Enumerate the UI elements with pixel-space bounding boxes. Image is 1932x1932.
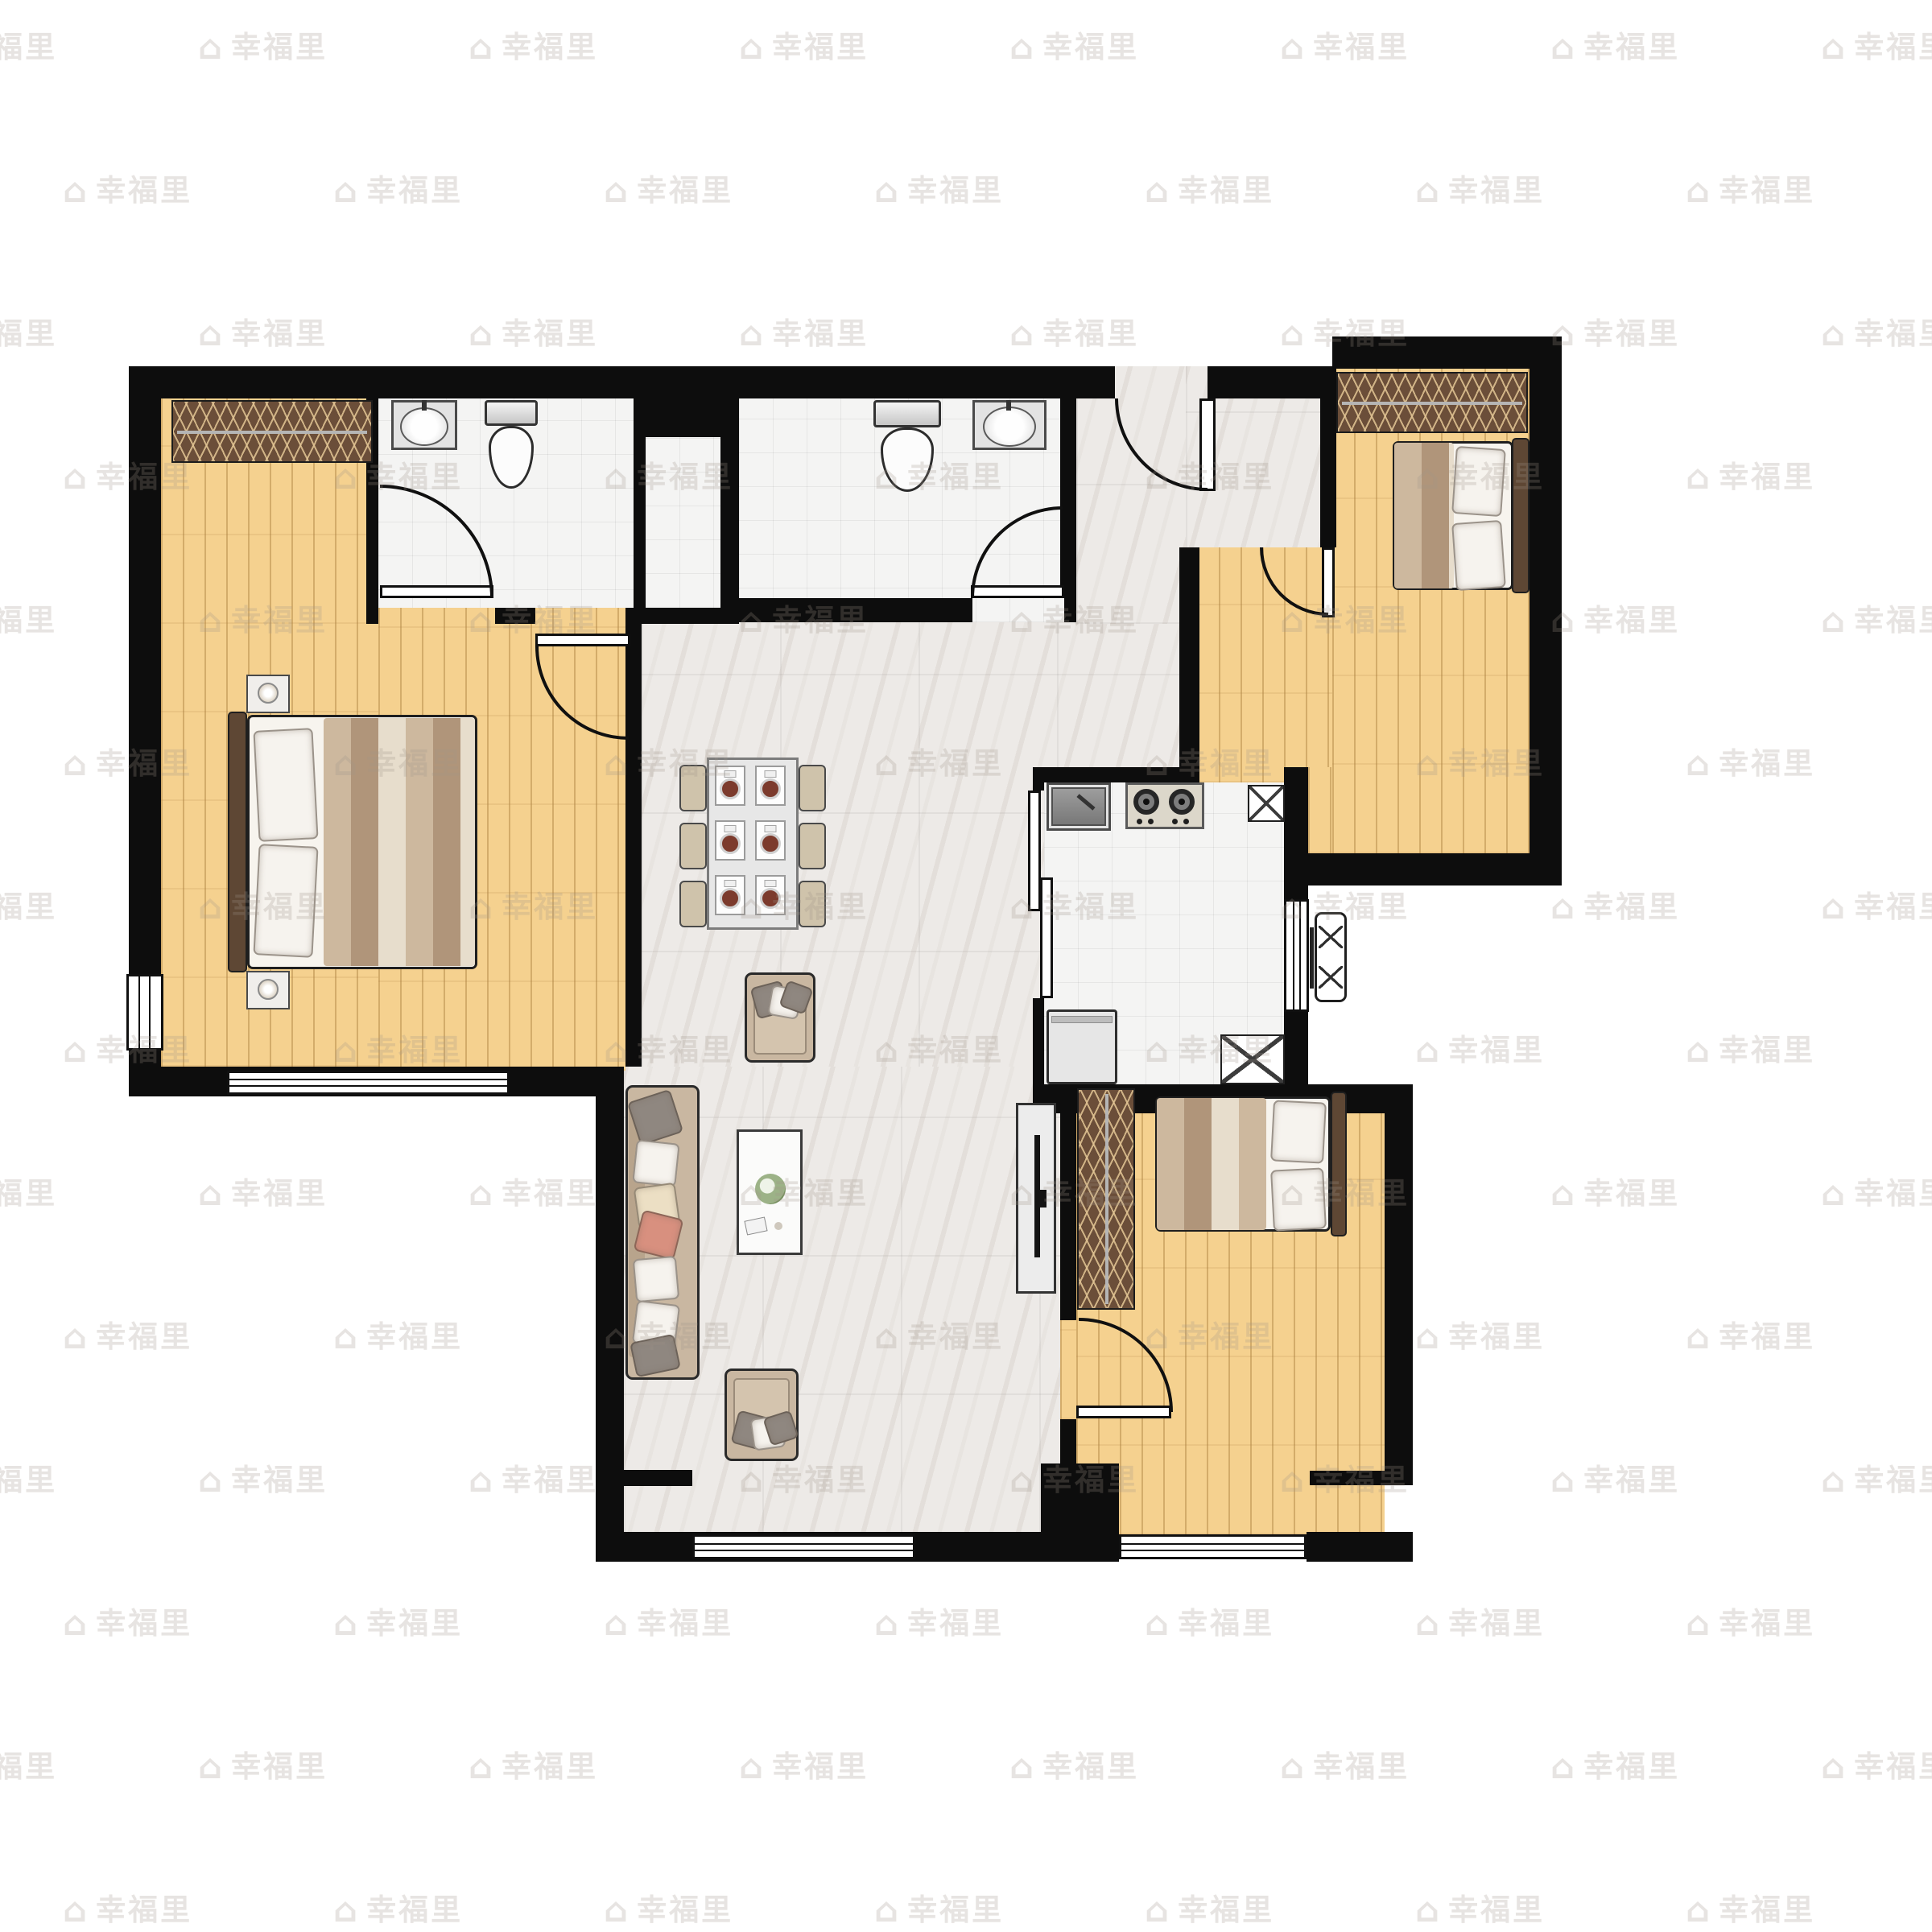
house-icon: ⌂ (1415, 1604, 1442, 1643)
house-icon: ⌂ (198, 1174, 225, 1213)
watermark-text: ⌂幸福里 (63, 166, 192, 210)
house-icon: ⌂ (1821, 27, 1847, 67)
watermark-text: ⌂幸福里 (0, 1742, 57, 1786)
house-icon: ⌂ (604, 1890, 630, 1930)
watermark-text: ⌂幸福里 (0, 1455, 57, 1500)
watermark-text: ⌂幸福里 (1821, 23, 1932, 67)
wall-bath1-bed1-post (495, 608, 535, 624)
watermark-text: ⌂幸福里 (739, 23, 869, 67)
ac-unit-fan-top (1319, 926, 1343, 948)
floor-plan-canvas: ⌂幸福里⌂幸福里⌂幸福里⌂幸福里⌂幸福里⌂幸福里⌂幸福里⌂幸福里⌂幸福里⌂幸福里… (0, 0, 1932, 1932)
house-icon: ⌂ (63, 171, 89, 210)
window-living-bottom (692, 1534, 915, 1559)
watermark-text: ⌂幸福里 (874, 166, 1004, 210)
wall-kitchen-left-a (1033, 782, 1044, 791)
dining-chair-right-3 (799, 881, 826, 927)
watermark-text: ⌂幸福里 (333, 1312, 463, 1356)
house-icon: ⌂ (1686, 1317, 1712, 1356)
house-icon: ⌂ (333, 1317, 360, 1356)
dining-setting-2 (755, 766, 786, 806)
wall-top-main (129, 366, 1115, 398)
house-icon: ⌂ (63, 1890, 89, 1930)
bedroom3-bed-pillow-a (1270, 1100, 1327, 1163)
dining-setting-3 (715, 820, 745, 861)
dining-setting-5 (715, 875, 745, 915)
house-icon: ⌂ (1550, 1747, 1577, 1786)
wall-nook-left (1179, 547, 1199, 782)
watermark-text: ⌂幸福里 (1686, 1312, 1815, 1356)
house-icon: ⌂ (1009, 314, 1036, 353)
house-icon: ⌂ (1280, 314, 1307, 353)
watermark-text: ⌂幸福里 (333, 1599, 463, 1643)
wall-bath2-door-jamb (1064, 598, 1076, 622)
door-leaf-kitchen-slider-a (1028, 791, 1041, 911)
watermark-text: ⌂幸福里 (1821, 1455, 1932, 1500)
house-icon: ⌂ (1821, 1460, 1847, 1500)
bath2-sink-faucet (1006, 400, 1011, 411)
wall-right-outer (1529, 336, 1562, 885)
house-icon: ⌂ (63, 457, 89, 497)
watermark-text: ⌂幸福里 (333, 1885, 463, 1930)
house-icon: ⌂ (1821, 887, 1847, 927)
kitchen-burner-left-core (1143, 799, 1150, 805)
house-icon: ⌂ (198, 314, 225, 353)
kitchen-fold-door-bottom (1220, 1034, 1285, 1084)
watermark-text: ⌂幸福里 (1686, 1885, 1815, 1930)
house-icon: ⌂ (874, 171, 901, 210)
watermark-text: ⌂幸福里 (604, 1885, 733, 1930)
house-icon: ⌂ (739, 314, 766, 353)
wall-living-left (596, 1067, 624, 1562)
watermark-text: ⌂幸福里 (1550, 1455, 1680, 1500)
wall-duct-bottom (642, 608, 739, 624)
bedroom3-bed-pillow-b (1270, 1167, 1327, 1231)
watermark-text: ⌂幸福里 (1415, 1312, 1545, 1356)
bedroom1-bed-blanket (324, 718, 475, 966)
house-icon: ⌂ (1686, 1030, 1712, 1070)
bedroom2-bed-headboard (1512, 438, 1529, 593)
house-icon: ⌂ (1415, 1890, 1442, 1930)
bedroom1-bed-pillow-a (253, 728, 318, 842)
watermark-text: ⌂幸福里 (198, 23, 328, 67)
house-icon: ⌂ (1821, 1747, 1847, 1786)
bedroom3-wardrobe (1077, 1088, 1135, 1310)
watermark-text: ⌂幸福里 (1550, 23, 1680, 67)
wall-bedroom3-left-b (1060, 1419, 1076, 1463)
floor-duct-shaft (646, 437, 720, 608)
bedroom1-lamp-top (258, 683, 279, 704)
watermark-text: ⌂幸福里 (1821, 309, 1932, 353)
house-icon: ⌂ (198, 1747, 225, 1786)
window-bedroom1-bottom (227, 1071, 510, 1095)
house-icon: ⌂ (333, 1604, 360, 1643)
watermark-text: ⌂幸福里 (1550, 1169, 1680, 1213)
watermark-text: ⌂幸福里 (1145, 1599, 1274, 1643)
dining-chair-left-2 (679, 823, 707, 869)
house-icon: ⌂ (63, 1317, 89, 1356)
kitchen-fridge-line (1051, 1016, 1113, 1023)
wall-bedroom2-left-upper (1320, 398, 1336, 547)
sofa-pillow-2 (632, 1139, 679, 1187)
house-icon: ⌂ (1145, 1604, 1171, 1643)
house-icon: ⌂ (1686, 1890, 1712, 1930)
house-icon: ⌂ (1280, 27, 1307, 67)
floor-bedroom3-doorway (1060, 1320, 1076, 1419)
ac-unit-bracket (1310, 927, 1314, 989)
watermark-text: ⌂幸福里 (604, 166, 733, 210)
wall-bath2-bottom (739, 598, 972, 622)
house-icon: ⌂ (1415, 1317, 1442, 1356)
dining-chair-left-1 (679, 765, 707, 811)
bedroom2-bed-pillow-b (1451, 520, 1506, 591)
window-kitchen-right (1284, 899, 1309, 1012)
house-icon: ⌂ (469, 1460, 495, 1500)
house-icon: ⌂ (1550, 887, 1577, 927)
wall-bedroom3-pier-br (1307, 1532, 1413, 1562)
bedroom2-bed-blanket (1394, 443, 1454, 588)
kitchen-fold-door-top (1248, 785, 1285, 822)
wall-left-outer-upper (129, 366, 161, 974)
kitchen-knob-4 (1183, 819, 1189, 824)
bedroom2-bed-pillow-a (1451, 446, 1506, 517)
watermark-text: ⌂幸福里 (1145, 1885, 1274, 1930)
watermark-text: ⌂幸福里 (1280, 23, 1410, 67)
tv-mount (1040, 1190, 1046, 1207)
coffee-table-flowers (755, 1174, 786, 1204)
house-icon: ⌂ (1415, 1030, 1442, 1070)
wall-kitchen-right-a (1284, 767, 1308, 899)
watermark-text: ⌂幸福里 (604, 1599, 733, 1643)
kitchen-knob-2 (1148, 819, 1154, 824)
house-icon: ⌂ (1280, 1747, 1307, 1786)
watermark-text: ⌂幸福里 (1686, 1026, 1815, 1070)
house-icon: ⌂ (874, 1890, 901, 1930)
watermark-text: ⌂幸福里 (1415, 1599, 1545, 1643)
bedroom1-bed-pillow-b (253, 844, 318, 958)
house-icon: ⌂ (739, 1747, 766, 1786)
watermark-text: ⌂幸福里 (63, 1599, 192, 1643)
watermark-text: ⌂幸福里 (739, 1742, 869, 1786)
bath1-sink-basin (400, 407, 448, 446)
house-icon: ⌂ (1821, 1174, 1847, 1213)
watermark-text: ⌂幸福里 (1686, 166, 1815, 210)
house-icon: ⌂ (1145, 1890, 1171, 1930)
wall-bedroom3-pier-bl (1041, 1463, 1119, 1562)
watermark-text: ⌂幸福里 (198, 1455, 328, 1500)
bedroom3-bed-blanket (1157, 1098, 1266, 1230)
coffee-table-cup (774, 1222, 782, 1230)
watermark-text: ⌂幸福里 (1550, 1742, 1680, 1786)
house-icon: ⌂ (1415, 171, 1442, 210)
house-icon: ⌂ (739, 27, 766, 67)
wall-duct-right (720, 437, 739, 608)
house-icon: ⌂ (1145, 171, 1171, 210)
wall-living-left-stub (624, 1470, 692, 1486)
watermark-text: ⌂幸福里 (0, 596, 57, 640)
watermark-text: ⌂幸福里 (1821, 882, 1932, 927)
wall-bedroom3-right (1385, 1113, 1413, 1471)
house-icon: ⌂ (1550, 1460, 1577, 1500)
bath2-toilet-tank (873, 400, 941, 427)
watermark-text: ⌂幸福里 (1415, 1885, 1545, 1930)
window-bedroom1-left (126, 974, 163, 1051)
watermark-text: ⌂幸福里 (469, 309, 598, 353)
house-icon: ⌂ (469, 1174, 495, 1213)
kitchen-knob-3 (1172, 819, 1178, 824)
watermark-text: ⌂幸福里 (333, 166, 463, 210)
wall-bath1-right (634, 398, 646, 608)
dining-setting-1 (715, 766, 745, 806)
watermark-text: ⌂幸福里 (1686, 739, 1815, 783)
dining-chair-right-1 (799, 765, 826, 811)
watermark-text: ⌂幸福里 (469, 1742, 598, 1786)
ac-unit-fan-bottom (1319, 966, 1343, 989)
house-icon: ⌂ (198, 27, 225, 67)
watermark-text: ⌂幸福里 (874, 1885, 1004, 1930)
watermark-text: ⌂幸福里 (1009, 309, 1139, 353)
watermark-text: ⌂幸福里 (1821, 1742, 1932, 1786)
bath1-sink-faucet (422, 400, 427, 411)
watermark-text: ⌂幸福里 (1550, 882, 1680, 927)
bath2-sink-basin (983, 407, 1036, 447)
dining-setting-4 (755, 820, 786, 861)
house-icon: ⌂ (63, 744, 89, 783)
watermark-text: ⌂幸福里 (1821, 596, 1932, 640)
watermark-text: ⌂幸福里 (0, 882, 57, 927)
house-icon: ⌂ (1009, 1747, 1036, 1786)
kitchen-knob-1 (1137, 819, 1142, 824)
watermark-text: ⌂幸福里 (1009, 1742, 1139, 1786)
door-leaf-bedroom1 (535, 634, 630, 646)
watermark-text: ⌂幸福里 (1821, 1169, 1932, 1213)
bedroom1-lamp-bottom (258, 979, 279, 1000)
watermark-text: ⌂幸福里 (1686, 1599, 1815, 1643)
watermark-text: ⌂幸福里 (1550, 309, 1680, 353)
bedroom3-bed-headboard (1331, 1092, 1347, 1236)
house-icon: ⌂ (63, 1030, 89, 1070)
watermark-text: ⌂幸福里 (1550, 596, 1680, 640)
wall-bed1-door-jamb (625, 608, 642, 624)
watermark-text: ⌂幸福里 (469, 1455, 598, 1500)
house-icon: ⌂ (1821, 314, 1847, 353)
watermark-text: ⌂幸福里 (0, 309, 57, 353)
dining-setting-6 (755, 875, 786, 915)
wall-bedroom2-top (1332, 336, 1562, 369)
kitchen-burner-right-core (1179, 799, 1185, 805)
watermark-text: ⌂幸福里 (63, 1885, 192, 1930)
watermark-text: ⌂幸福里 (874, 1599, 1004, 1643)
watermark-text: ⌂幸福里 (1280, 1742, 1410, 1786)
house-icon: ⌂ (469, 314, 495, 353)
dining-chair-right-2 (799, 823, 826, 869)
wall-bedroom2-bottom (1304, 853, 1562, 885)
watermark-text: ⌂幸福里 (198, 309, 328, 353)
watermark-text: ⌂幸福里 (469, 1169, 598, 1213)
house-icon: ⌂ (604, 171, 630, 210)
house-icon: ⌂ (1686, 1604, 1712, 1643)
window-bedroom3-bottom (1119, 1534, 1307, 1559)
house-icon: ⌂ (1686, 457, 1712, 497)
watermark-text: ⌂幸福里 (1009, 23, 1139, 67)
house-icon: ⌂ (874, 1604, 901, 1643)
house-icon: ⌂ (1550, 1174, 1577, 1213)
bedroom1-bed-headboard (228, 712, 247, 972)
house-icon: ⌂ (469, 1747, 495, 1786)
house-icon: ⌂ (1550, 27, 1577, 67)
house-icon: ⌂ (469, 27, 495, 67)
watermark-text: ⌂幸福里 (0, 23, 57, 67)
sofa-pillow-5 (633, 1256, 680, 1303)
watermark-text: ⌂幸福里 (739, 309, 869, 353)
house-icon: ⌂ (198, 1460, 225, 1500)
house-icon: ⌂ (1686, 744, 1712, 783)
dining-chair-left-3 (679, 881, 707, 927)
house-icon: ⌂ (1009, 27, 1036, 67)
wall-kitchen-left-b (1033, 998, 1044, 1084)
bedroom1-wardrobe (171, 400, 373, 463)
house-icon: ⌂ (1686, 171, 1712, 210)
bedroom2-wardrobe (1336, 372, 1528, 433)
wall-bedroom3-left-a (1060, 1113, 1076, 1320)
house-icon: ⌂ (333, 1890, 360, 1930)
watermark-text: ⌂幸福里 (198, 1169, 328, 1213)
watermark-text: ⌂幸福里 (0, 1169, 57, 1213)
watermark-text: ⌂幸福里 (63, 1312, 192, 1356)
wall-kitchen-top (1033, 767, 1186, 782)
house-icon: ⌂ (333, 171, 360, 210)
watermark-text: ⌂幸福里 (1145, 166, 1274, 210)
bath1-toilet-tank (485, 400, 538, 426)
door-leaf-kitchen-slider-b (1040, 877, 1053, 998)
watermark-text: ⌂幸福里 (1415, 1026, 1545, 1070)
house-icon: ⌂ (1821, 601, 1847, 640)
tv-screen-bar (1034, 1135, 1040, 1257)
wall-bedroom3-notch (1310, 1471, 1413, 1485)
watermark-text: ⌂幸福里 (1686, 452, 1815, 497)
wall-bath2-right (1060, 366, 1076, 598)
wall-top-entry-right (1207, 366, 1336, 398)
house-icon: ⌂ (604, 1604, 630, 1643)
house-icon: ⌂ (63, 1604, 89, 1643)
watermark-text: ⌂幸福里 (1415, 166, 1545, 210)
watermark-text: ⌂幸福里 (469, 23, 598, 67)
wall-duct-bulkhead (646, 398, 739, 437)
watermark-text: ⌂幸福里 (198, 1742, 328, 1786)
